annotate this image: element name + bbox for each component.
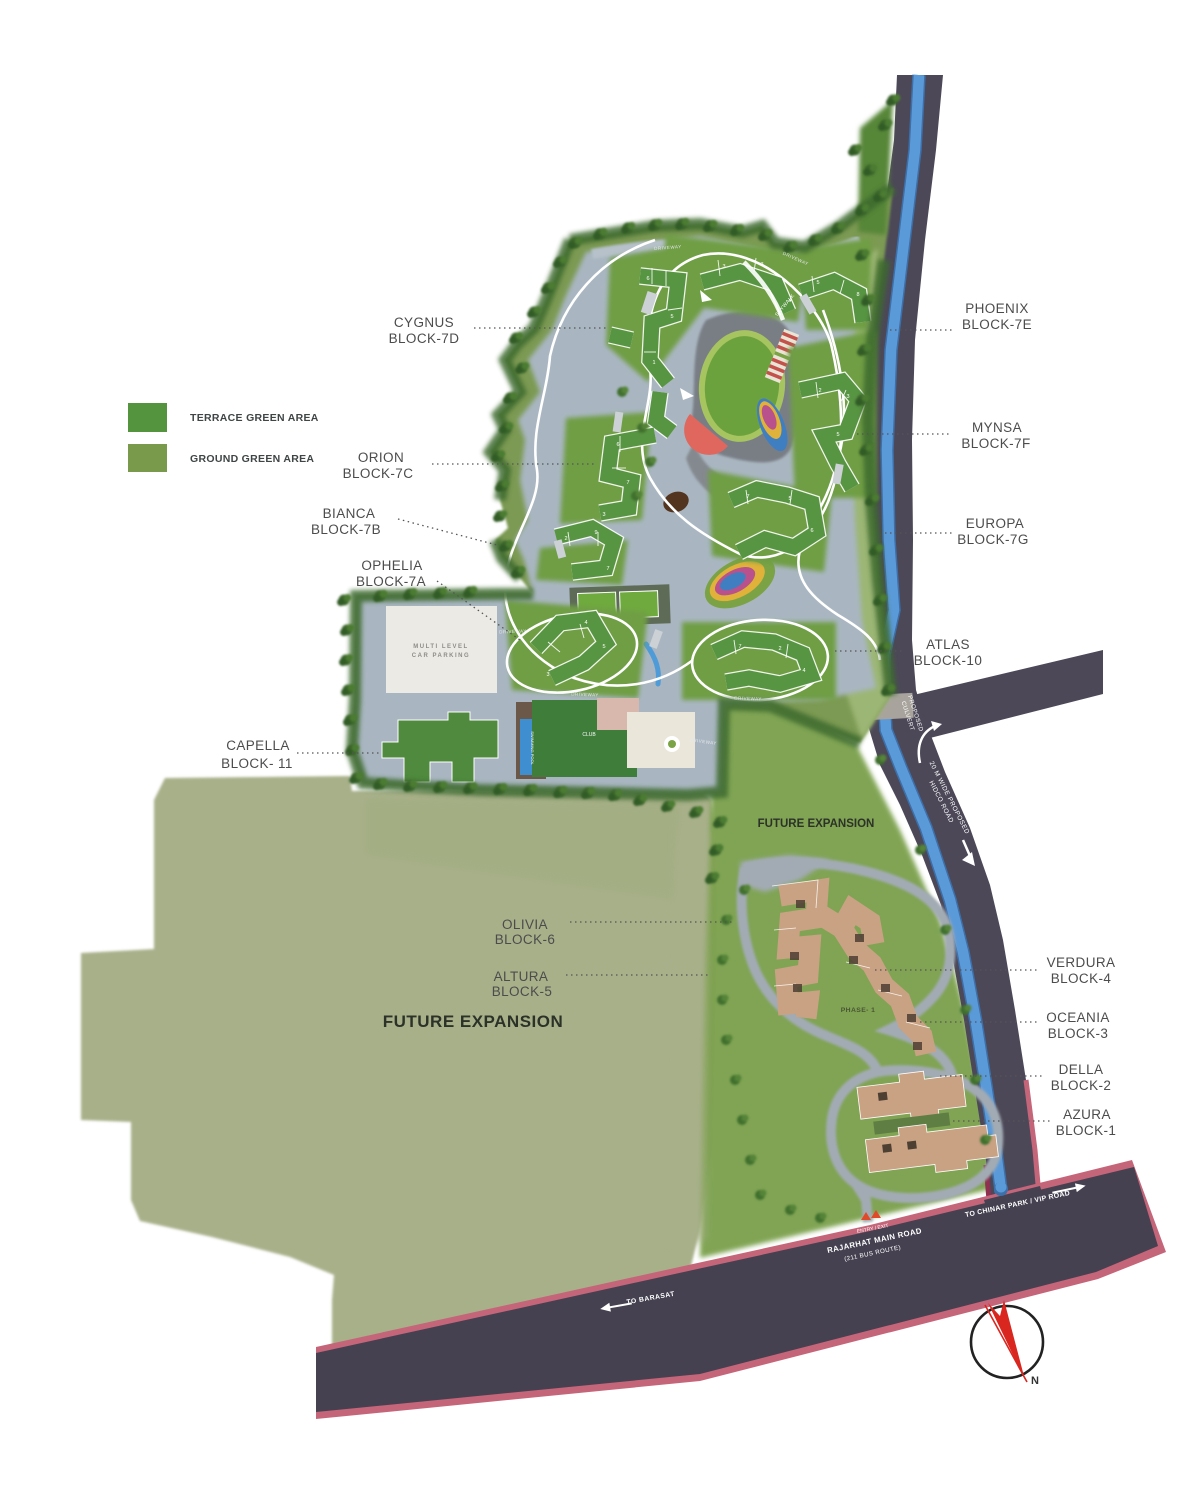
svg-text:OCEANIA: OCEANIA <box>1046 1010 1110 1025</box>
svg-text:OPHELIA: OPHELIA <box>361 558 422 573</box>
svg-text:7: 7 <box>738 644 741 650</box>
svg-text:MULTI LEVEL: MULTI LEVEL <box>413 644 468 650</box>
svg-text:BLOCK-7A: BLOCK-7A <box>356 574 426 589</box>
svg-text:FUTURE EXPANSION: FUTURE EXPANSION <box>383 1012 564 1031</box>
svg-text:CAPELLA: CAPELLA <box>226 738 290 753</box>
svg-text:ALTURA: ALTURA <box>494 969 549 984</box>
svg-text:6: 6 <box>810 528 813 534</box>
svg-text:DRIVEWAY: DRIVEWAY <box>734 696 762 702</box>
svg-text:OLIVIA: OLIVIA <box>502 917 548 932</box>
svg-text:CAR PARKING: CAR PARKING <box>412 653 470 659</box>
svg-text:6: 6 <box>646 276 649 282</box>
svg-text:BLOCK-7E: BLOCK-7E <box>962 317 1032 332</box>
svg-text:3: 3 <box>846 394 849 400</box>
svg-text:BIANCA: BIANCA <box>323 506 376 521</box>
svg-text:5: 5 <box>788 496 791 502</box>
svg-text:8: 8 <box>856 292 859 298</box>
svg-text:2: 2 <box>564 536 567 542</box>
svg-text:BLOCK-1: BLOCK-1 <box>1056 1123 1117 1138</box>
svg-text:BLOCK-5: BLOCK-5 <box>492 984 553 999</box>
svg-text:BLOCK-3: BLOCK-3 <box>1048 1026 1109 1041</box>
svg-text:BLOCK-6: BLOCK-6 <box>495 932 556 947</box>
svg-text:CYGNUS: CYGNUS <box>394 315 454 330</box>
svg-text:VERDURA: VERDURA <box>1047 955 1116 970</box>
svg-text:4: 4 <box>584 620 587 626</box>
svg-text:9: 9 <box>594 530 597 536</box>
svg-text:EUROPA: EUROPA <box>966 516 1024 531</box>
svg-text:1: 1 <box>652 360 655 366</box>
svg-text:7: 7 <box>746 494 749 500</box>
svg-text:3: 3 <box>546 672 549 678</box>
svg-text:3: 3 <box>760 262 763 268</box>
svg-text:7: 7 <box>606 566 609 572</box>
svg-text:5: 5 <box>602 644 605 650</box>
svg-text:3: 3 <box>602 512 605 518</box>
svg-text:2: 2 <box>778 646 781 652</box>
svg-text:ORION: ORION <box>358 450 404 465</box>
svg-text:AZURA: AZURA <box>1063 1107 1111 1122</box>
svg-text:BLOCK-7B: BLOCK-7B <box>311 522 381 537</box>
svg-text:SWIMMING POOL: SWIMMING POOL <box>530 731 535 765</box>
svg-text:BLOCK- 11: BLOCK- 11 <box>221 756 293 771</box>
svg-text:ATLAS: ATLAS <box>926 637 970 652</box>
svg-text:DELLA: DELLA <box>1059 1062 1104 1077</box>
svg-text:MYNSA: MYNSA <box>972 420 1022 435</box>
svg-text:PHOENIX: PHOENIX <box>965 301 1029 316</box>
svg-text:BLOCK-10: BLOCK-10 <box>914 653 982 668</box>
svg-text:GROUND GREEN AREA: GROUND GREEN AREA <box>190 453 314 465</box>
svg-text:TERRACE GREEN AREA: TERRACE GREEN AREA <box>190 412 319 424</box>
svg-text:5: 5 <box>836 432 839 438</box>
svg-text:BLOCK-7F: BLOCK-7F <box>961 436 1030 451</box>
svg-text:5: 5 <box>816 280 819 286</box>
svg-text:7: 7 <box>626 480 629 486</box>
svg-text:6: 6 <box>616 442 619 448</box>
svg-text:5: 5 <box>670 314 673 320</box>
svg-text:4: 4 <box>802 668 805 674</box>
svg-text:FUTURE EXPANSION: FUTURE EXPANSION <box>758 818 875 830</box>
svg-text:DRIVEWAY: DRIVEWAY <box>499 629 527 635</box>
svg-text:PHASE- 1: PHASE- 1 <box>841 1007 876 1014</box>
svg-text:BLOCK-7D: BLOCK-7D <box>389 331 460 346</box>
svg-text:CLUB: CLUB <box>582 732 596 738</box>
svg-text:2: 2 <box>818 388 821 394</box>
svg-text:BLOCK-2: BLOCK-2 <box>1051 1078 1112 1093</box>
svg-text:N: N <box>1031 1375 1039 1387</box>
svg-text:BLOCK-7C: BLOCK-7C <box>343 466 414 481</box>
svg-text:3: 3 <box>722 264 725 270</box>
svg-text:DRIVEWAY: DRIVEWAY <box>571 692 599 698</box>
svg-text:BLOCK-7G: BLOCK-7G <box>957 532 1028 547</box>
svg-text:BLOCK-4: BLOCK-4 <box>1051 971 1112 986</box>
